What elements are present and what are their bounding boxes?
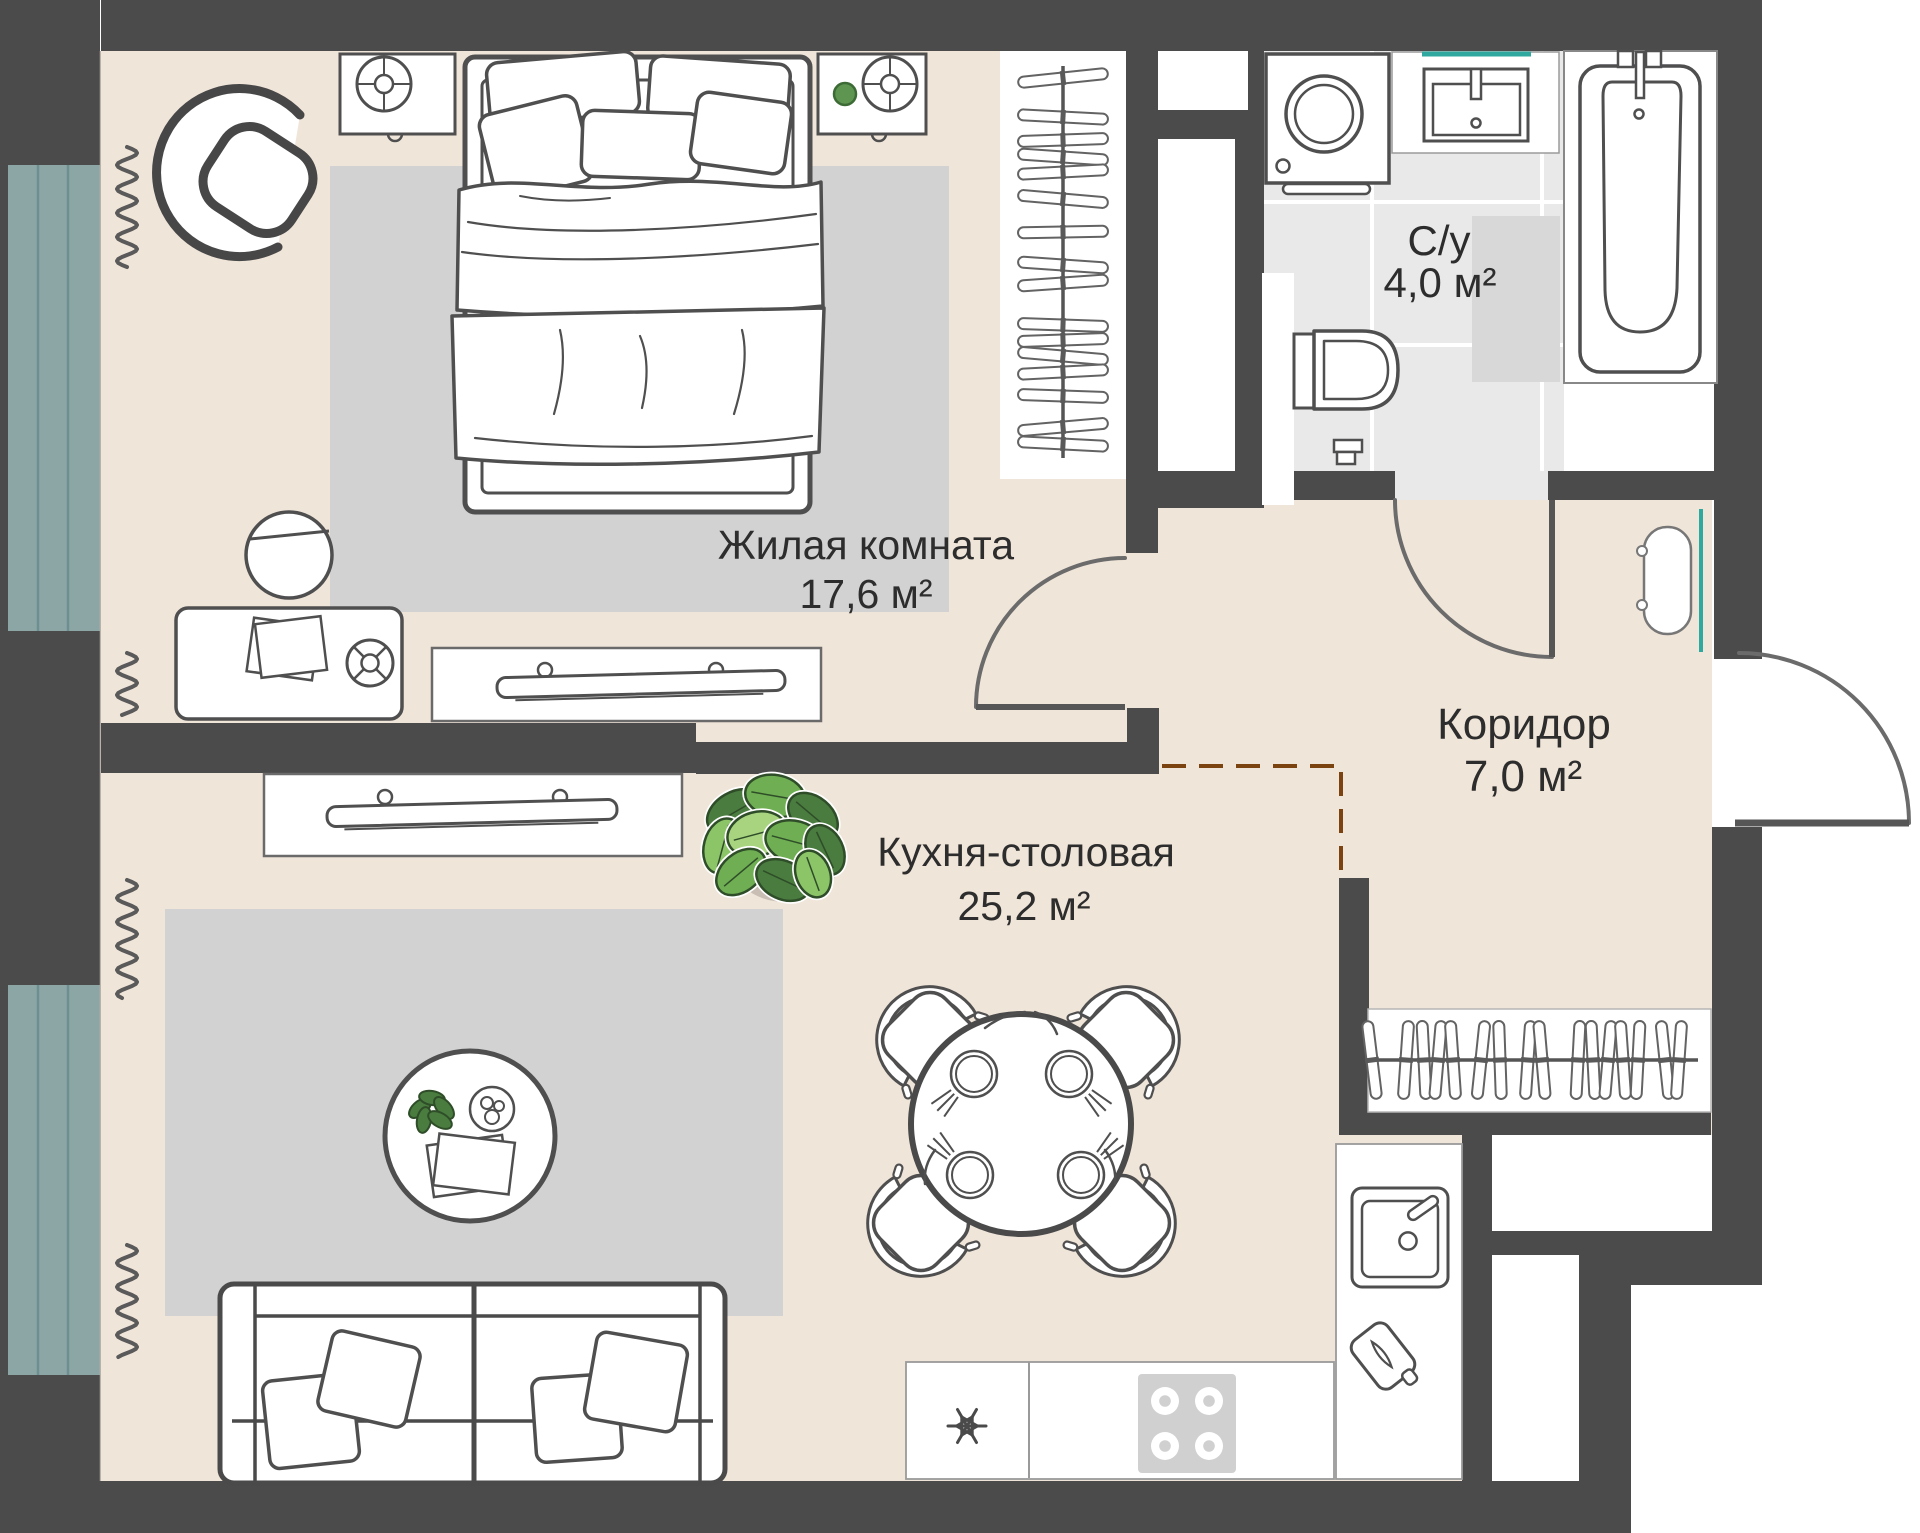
svg-text:Жилая комната: Жилая комната [718,522,1014,568]
svg-text:17,6 м²: 17,6 м² [799,571,932,617]
svg-text:7,0 м²: 7,0 м² [1464,752,1582,801]
svg-text:Кухня-столовая: Кухня-столовая [877,829,1175,875]
svg-text:25,2 м²: 25,2 м² [957,883,1090,929]
svg-text:Коридор: Коридор [1437,700,1611,749]
svg-text:4,0 м²: 4,0 м² [1384,259,1497,306]
svg-text:С/у: С/у [1408,217,1471,264]
